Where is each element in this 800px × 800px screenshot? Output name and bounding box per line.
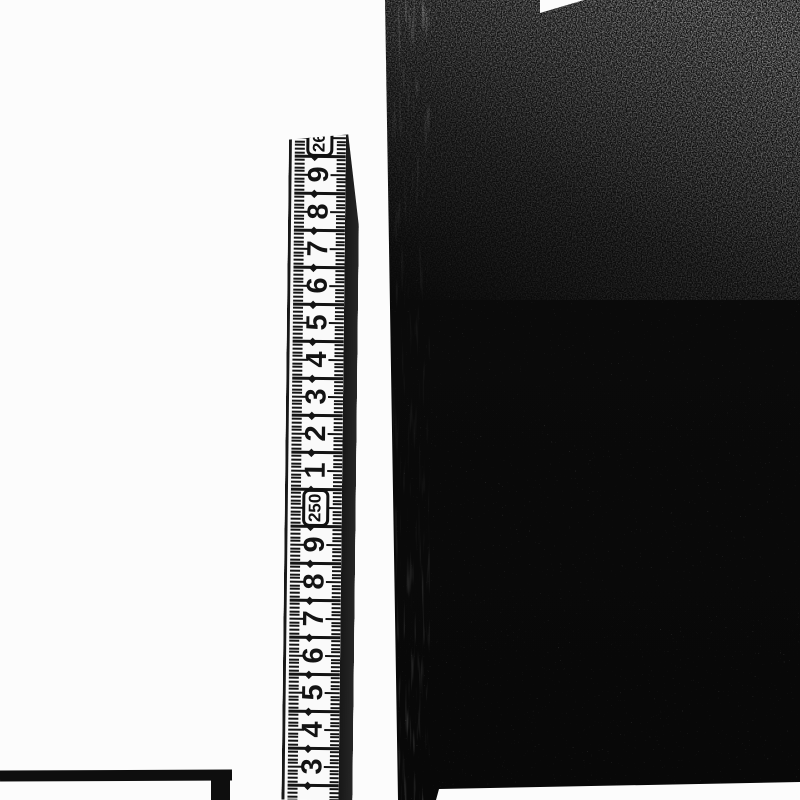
tick-mark-left (293, 333, 303, 335)
tick-mark-left (291, 514, 301, 516)
tick-mark-right (334, 381, 343, 383)
ruler-cm-number: 7 (298, 611, 331, 627)
tick-mark-left (290, 607, 300, 609)
tick-mark-left (292, 381, 302, 383)
tick-mark-right (333, 518, 342, 520)
ruler-decimeter-label: 260 (306, 133, 333, 158)
tick-mark-left (290, 555, 300, 557)
tick-mark-left (291, 496, 301, 498)
tick-mark-right (331, 633, 340, 635)
tick-mark-right (332, 533, 341, 535)
tick-mark-right (334, 370, 343, 372)
tick-mark-right (332, 611, 341, 613)
tick-cm-diamond (309, 263, 317, 271)
tick-mark-left (290, 533, 300, 535)
tick-mark-right (331, 662, 340, 664)
tick-mark-right (330, 762, 339, 764)
tick-mark-right (333, 448, 342, 450)
tick-mark-left (291, 444, 301, 446)
tick-mark-right (335, 307, 344, 309)
tick-mark-left (291, 518, 301, 520)
tick-mark-right (333, 522, 342, 524)
tick-mark-left (288, 751, 298, 753)
tick-mark-right (337, 152, 346, 154)
tick-mark-left (289, 703, 299, 705)
tick-mark-right (332, 540, 341, 542)
tick-mark-left (290, 595, 300, 597)
tick-cm-line (289, 673, 340, 676)
tick-mark-right (336, 219, 345, 221)
tick-mark-left (295, 133, 305, 135)
tick-mark-left (294, 188, 304, 190)
tick-mark-right (330, 733, 339, 735)
tick-mark-right (334, 363, 343, 365)
tick-mark-right (331, 648, 340, 650)
tick-cm-diamond (308, 300, 316, 308)
tick-cm-diamond (310, 189, 318, 197)
tick-mark-left (293, 336, 303, 338)
ruler-cm-number: 5 (301, 315, 334, 331)
tick-mark-right (333, 463, 342, 465)
tick-mark-right (332, 589, 341, 591)
tick-mark-left (291, 481, 301, 483)
tick-mark-left (292, 370, 302, 372)
tick-mark-left (293, 299, 303, 301)
tick-mark-left (288, 740, 298, 742)
tick-mark-right (335, 344, 344, 346)
tick-mark-right (336, 178, 345, 180)
tick-mark-right (330, 714, 339, 716)
tick-mark-left (294, 237, 304, 239)
tick-mark-left (287, 795, 297, 797)
tick-mark-left (288, 777, 298, 779)
tick-mark-right (336, 182, 345, 184)
tick-mark-right (337, 159, 346, 161)
tick-mark-right (335, 289, 344, 291)
tick-mark-left (291, 503, 301, 505)
tick-mark-right (330, 781, 339, 783)
tick-mark-left (289, 644, 299, 646)
film-grain-texture (384, 0, 800, 800)
tick-mark-right (330, 788, 339, 790)
tick-mark-left (289, 640, 299, 642)
tick-mark-right (337, 141, 346, 143)
ruler-decimeter-label: 250 (302, 489, 329, 527)
tick-mark-left (295, 148, 305, 150)
tick-mark-right (331, 699, 340, 701)
tick-mark-left (293, 348, 303, 350)
tick-mark-right (331, 651, 340, 653)
tick-mark-left (295, 144, 305, 146)
tick-mark-left (290, 603, 300, 605)
tick-mark-left (293, 270, 303, 272)
tick-mark-right (330, 770, 339, 772)
tick-mark-right (336, 233, 345, 235)
tick-mark-right (335, 300, 344, 302)
tick-mark-right (332, 566, 341, 568)
tick-mark-left (294, 233, 304, 235)
tick-mark-right (337, 145, 346, 147)
ruler-cm-number: 9 (303, 167, 336, 183)
tick-cm-line (291, 451, 342, 454)
tick-mark-right (330, 755, 339, 757)
tick-mark-right (335, 293, 344, 295)
tick-mark-left (291, 447, 301, 449)
tick-mark-right (330, 736, 339, 738)
ruler-cm-number: 5 (297, 685, 330, 701)
tick-mark-left (289, 669, 299, 671)
tick-mark-right (336, 204, 345, 206)
tick-cm-line (292, 414, 343, 417)
tick-cm-line (294, 192, 345, 195)
tick-mark-right (336, 237, 345, 239)
tick-cm-diamond (305, 633, 313, 641)
tick-mark-right (331, 629, 340, 631)
ruler-cm-number: 3 (296, 759, 329, 775)
tick-mark-right (336, 244, 345, 246)
tick-mark-left (291, 499, 301, 501)
tick-mark-right (336, 241, 345, 243)
tick-mark-right (332, 603, 341, 605)
tick-mark-right (335, 311, 344, 313)
tick-mark-right (331, 703, 340, 705)
tick-mark-left (293, 296, 303, 298)
tick-mark-left (292, 422, 302, 424)
tick-mark-right (334, 422, 343, 424)
ruler-cm-number: 8 (298, 574, 331, 590)
tick-mark-right (333, 444, 342, 446)
tick-cm-diamond (308, 374, 316, 382)
tick-mark-right (330, 718, 339, 720)
tick-mark-right (337, 163, 346, 165)
tick-mark-right (335, 278, 344, 280)
tick-mark-left (289, 681, 299, 683)
tick-mark-right (333, 478, 342, 480)
tick-mark-right (336, 215, 345, 217)
tick-mark-left (288, 755, 298, 757)
tick-mark-right (334, 374, 343, 376)
tick-mark-left (289, 632, 299, 634)
tick-mark-right (331, 677, 340, 679)
tick-mark-right (336, 189, 345, 191)
tick-mark-right (332, 552, 341, 554)
tick-mark-right (333, 500, 342, 502)
tick-mark-right (333, 441, 342, 443)
tick-mark-right (334, 404, 343, 406)
dark-object (384, 0, 800, 800)
tick-mark-right (331, 626, 340, 628)
tick-mark-left (288, 706, 298, 708)
tick-cm-diamond (303, 744, 311, 752)
ruler-cm-number: 8 (303, 204, 336, 220)
tick-mark-right (337, 167, 346, 169)
tick-mark-left (294, 262, 304, 264)
tick-cm-diamond (303, 781, 311, 789)
tick-cm-line (288, 747, 339, 750)
tick-cm-diamond (306, 559, 314, 567)
tick-mark-right (331, 644, 340, 646)
tick-mark-right (333, 492, 342, 494)
tick-cm-diamond (307, 448, 315, 456)
tick-mark-right (330, 773, 339, 775)
tick-mark-left (295, 159, 305, 161)
tick-mark-right (334, 411, 343, 413)
tick-mark-right (333, 459, 342, 461)
tick-mark-right (333, 496, 342, 498)
tick-mark-left (294, 259, 304, 261)
tick-mark-right (335, 315, 344, 317)
tick-mark-right (336, 259, 345, 261)
tick-mark-left (288, 780, 298, 782)
tick-mark-right (330, 777, 339, 779)
tick-mark-right (335, 330, 344, 332)
tick-mark-right (336, 263, 345, 265)
tick-mark-right (332, 607, 341, 609)
tick-mark-right (336, 256, 345, 258)
tick-mark-left (291, 510, 301, 512)
tick-mark-left (290, 566, 300, 568)
tick-mark-right (335, 318, 344, 320)
tick-mark-right (330, 707, 339, 709)
frame-corner-horizontal-bar (0, 769, 232, 781)
tick-mark-left (288, 743, 298, 745)
ruler-cm-number: 3 (300, 389, 333, 405)
tick-mark-left (295, 140, 305, 142)
tick-mark-right (333, 485, 342, 487)
tick-mark-right (332, 559, 341, 561)
tick-cm-line (293, 266, 344, 269)
tick-mark-right (330, 722, 339, 724)
tick-mark-left (292, 418, 302, 420)
tick-mark-left (293, 307, 303, 309)
tick-mark-right (334, 400, 343, 402)
tick-mark-right (337, 133, 346, 135)
tick-mark-right (331, 640, 340, 642)
tick-mark-right (332, 548, 341, 550)
tick-mark-right (332, 574, 341, 576)
tick-cm-line (289, 636, 340, 639)
tick-mark-right (332, 577, 341, 579)
tick-mark-left (288, 792, 298, 794)
tick-mark-right (335, 274, 344, 276)
tick-mark-right (330, 740, 339, 742)
tick-mark-left (292, 407, 302, 409)
tick-mark-right (333, 455, 342, 457)
tick-mark-right (336, 252, 345, 254)
tick-mark-right (333, 474, 342, 476)
tick-mark-right (332, 614, 341, 616)
tick-mark-right (335, 296, 344, 298)
tick-mark-right (331, 659, 340, 661)
tick-mark-left (291, 492, 301, 494)
measuring-tape: 2609876543212509876543 (281, 133, 360, 800)
tick-mark-right (335, 326, 344, 328)
tick-mark-left (291, 521, 301, 523)
tick-mark-right (331, 622, 340, 624)
tick-mark-left (288, 714, 298, 716)
tick-mark-left (290, 592, 300, 594)
tick-mark-right (332, 529, 341, 531)
tick-mark-left (294, 200, 304, 202)
tick-mark-left (289, 629, 299, 631)
tick-mark-right (334, 389, 343, 391)
tick-mark-left (290, 558, 300, 560)
tick-mark-right (332, 570, 341, 572)
tick-mark-right (334, 437, 343, 439)
tick-mark-right (332, 596, 341, 598)
tick-mark-right (331, 696, 340, 698)
tick-mark-right (330, 725, 339, 727)
tick-mark-right (335, 333, 344, 335)
tick-mark-left (288, 718, 298, 720)
tick-mark-right (331, 681, 340, 683)
tick-mark-left (293, 311, 303, 313)
measuring-tape-face: 2609876543212509876543 (281, 133, 346, 800)
frame-corner-vertical-bar (211, 770, 230, 800)
tick-cm-line (290, 599, 341, 602)
tick-mark-left (295, 151, 305, 153)
ruler-cm-number: 6 (302, 278, 335, 294)
tick-cm-diamond (304, 707, 312, 715)
tick-mark-right (334, 407, 343, 409)
ruler-cm-number: 7 (302, 241, 335, 257)
tick-mark-left (294, 196, 304, 198)
ruler-cm-number: 6 (298, 648, 331, 664)
tick-cm-line (288, 784, 339, 787)
tick-mark-right (334, 426, 343, 428)
tick-cm-line (294, 229, 345, 232)
tick-cm-diamond (304, 670, 312, 678)
ruler-cm-number: 4 (301, 352, 334, 368)
tick-mark-right (337, 170, 346, 172)
tick-mark-right (335, 281, 344, 283)
tick-mark-right (330, 751, 339, 753)
tick-mark-left (291, 459, 301, 461)
tick-mark-left (292, 410, 302, 412)
tick-mark-right (334, 429, 343, 431)
tick-mark-right (333, 481, 342, 483)
tick-mark-left (293, 274, 303, 276)
tick-mark-right (331, 685, 340, 687)
tick-cm-line (292, 377, 343, 380)
tick-mark-right (336, 222, 345, 224)
tick-mark-left (292, 385, 302, 387)
tick-mark-left (293, 344, 303, 346)
tick-mark-right (330, 759, 339, 761)
tick-mark-right (337, 148, 346, 150)
tick-cm-diamond (305, 596, 313, 604)
tick-mark-right (334, 385, 343, 387)
tick-cm-line (288, 710, 339, 713)
tick-mark-left (288, 788, 298, 790)
tick-mark-left (294, 185, 304, 187)
tick-mark-right (336, 196, 345, 198)
tick-mark-right (333, 511, 342, 513)
tick-cm-diamond (309, 226, 317, 234)
tick-mark-right (334, 418, 343, 420)
tick-mark-left (291, 455, 301, 457)
tick-mark-left (289, 677, 299, 679)
tick-mark-right (332, 592, 341, 594)
tick-mark-right (334, 355, 343, 357)
tick-mark-right (331, 688, 340, 690)
tick-mark-right (329, 796, 338, 798)
tick-mark-right (330, 744, 339, 746)
tick-mark-right (331, 670, 340, 672)
tick-mark-right (333, 466, 342, 468)
tick-mark-right (332, 537, 341, 539)
tick-mark-right (336, 207, 345, 209)
tick-mark-left (289, 666, 299, 668)
tick-mark-right (332, 585, 341, 587)
tick-mark-left (292, 373, 302, 375)
tick-cm-line (290, 562, 341, 565)
tick-mark-right (334, 367, 343, 369)
tick-mark-right (336, 185, 345, 187)
ruler-cm-number: 9 (299, 537, 332, 553)
tick-mark-left (291, 484, 301, 486)
tick-mark-right (332, 555, 341, 557)
tick-mark-right (333, 503, 342, 505)
photo-canvas: 2609876543212509876543 (0, 0, 800, 800)
tick-mark-left (295, 163, 305, 165)
tick-mark-right (336, 200, 345, 202)
ruler-cm-number: 2 (300, 426, 333, 442)
tick-mark-left (294, 222, 304, 224)
tick-mark-right (333, 515, 342, 517)
tick-cm-line (293, 303, 344, 306)
tick-cm-diamond (307, 411, 315, 419)
tick-mark-right (334, 392, 343, 394)
ruler-cm-number: 1 (300, 463, 333, 479)
tick-mark-left (294, 225, 304, 227)
tick-mark-left (290, 570, 300, 572)
tick-mark-right (330, 792, 339, 794)
tick-mark-right (335, 337, 344, 339)
tick-cm-diamond (308, 337, 316, 345)
tick-mark-right (335, 348, 344, 350)
tick-mark-right (331, 666, 340, 668)
tick-mark-left (290, 529, 300, 531)
tick-mark-right (335, 270, 344, 272)
tick-mark-right (334, 352, 343, 354)
tick-cm-line (293, 340, 344, 343)
ruler-cm-number: 4 (297, 722, 330, 738)
tick-mark-right (336, 226, 345, 228)
